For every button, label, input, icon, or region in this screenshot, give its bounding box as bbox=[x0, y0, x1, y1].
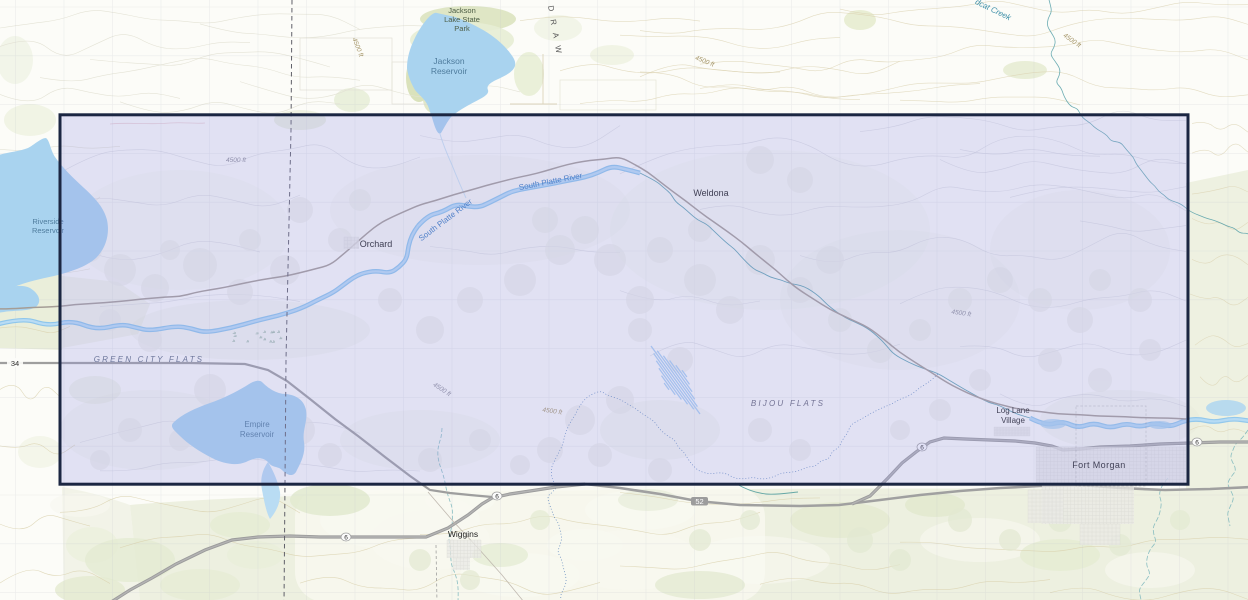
svg-text:6: 6 bbox=[344, 534, 348, 541]
svg-text:6: 6 bbox=[1195, 439, 1199, 446]
svg-text:34: 34 bbox=[11, 359, 19, 368]
svg-text:Jackson: Jackson bbox=[433, 56, 464, 66]
svg-text:Reservoir: Reservoir bbox=[431, 66, 468, 76]
svg-text:6: 6 bbox=[495, 493, 499, 500]
svg-text:Wiggins: Wiggins bbox=[448, 529, 478, 539]
svg-text:Lake State: Lake State bbox=[444, 15, 480, 24]
svg-text:Jackson: Jackson bbox=[448, 6, 476, 15]
svg-text:52: 52 bbox=[695, 497, 703, 506]
svg-text:Park: Park bbox=[454, 24, 470, 33]
